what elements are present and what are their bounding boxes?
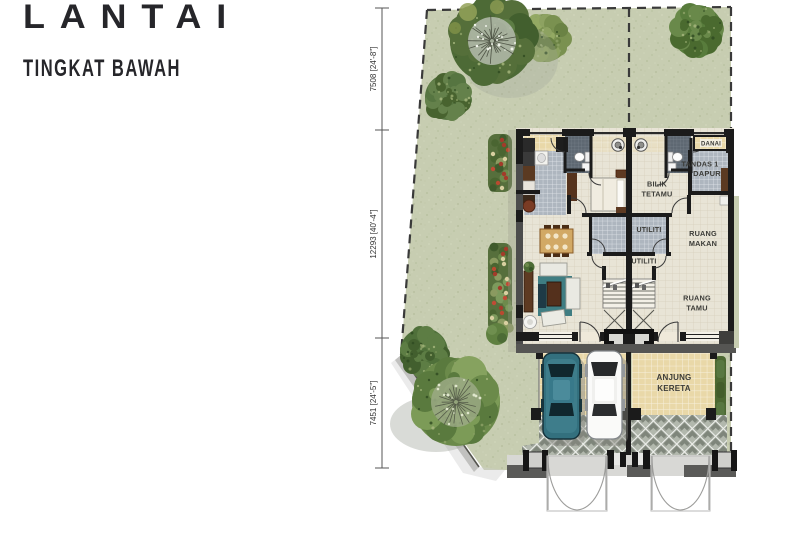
svg-text:7508 [24'-8"]: 7508 [24'-8"] <box>369 47 378 92</box>
svg-text:DANAI: DANAI <box>701 142 721 148</box>
svg-text:LANTAI: LANTAI <box>23 0 241 36</box>
svg-text:TAMU: TAMU <box>686 304 707 313</box>
svg-text:TINGKAT BAWAH: TINGKAT BAWAH <box>23 55 181 82</box>
svg-text:UTILITI: UTILITI <box>636 227 661 234</box>
svg-text:TETAMU: TETAMU <box>641 190 672 199</box>
svg-text:7451 [24'-5"]: 7451 [24'-5"] <box>369 381 378 426</box>
svg-text:DAPUR: DAPUR <box>693 169 721 178</box>
svg-text:UTILITI: UTILITI <box>631 259 656 266</box>
svg-text:RUANG: RUANG <box>689 229 717 238</box>
svg-text:ANJUNG: ANJUNG <box>657 373 692 382</box>
svg-text:BILIK: BILIK <box>647 180 668 189</box>
svg-text:KERETA: KERETA <box>657 384 691 393</box>
svg-text:RUANG: RUANG <box>683 294 711 303</box>
svg-text:MAKAN: MAKAN <box>689 239 717 248</box>
svg-text:TANDAS 1: TANDAS 1 <box>681 160 718 169</box>
svg-text:12293 [40'-4"]: 12293 [40'-4"] <box>369 209 378 258</box>
